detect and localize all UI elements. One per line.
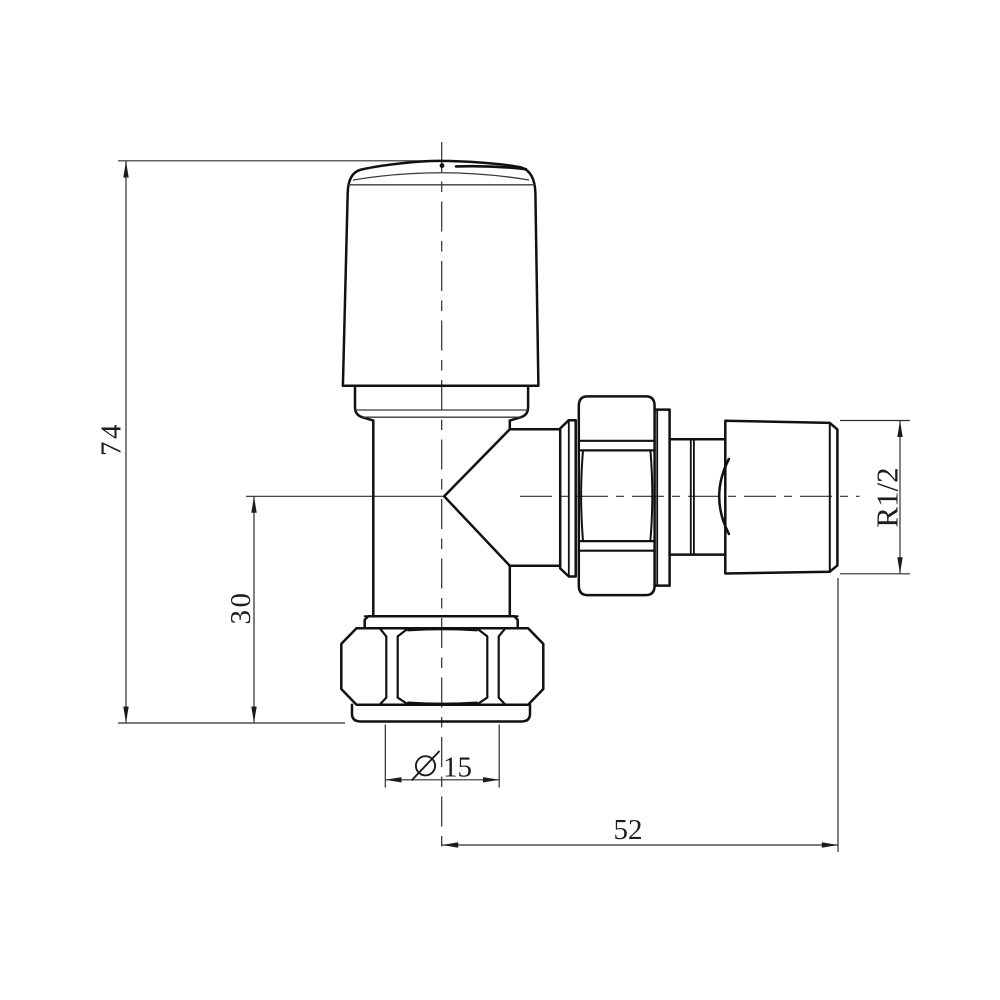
svg-text:R1/2: R1/2 bbox=[870, 467, 905, 527]
svg-text:74: 74 bbox=[96, 422, 128, 456]
svg-text:30: 30 bbox=[225, 591, 257, 625]
svg-text:15: 15 bbox=[443, 752, 472, 784]
svg-text:52: 52 bbox=[614, 814, 643, 846]
